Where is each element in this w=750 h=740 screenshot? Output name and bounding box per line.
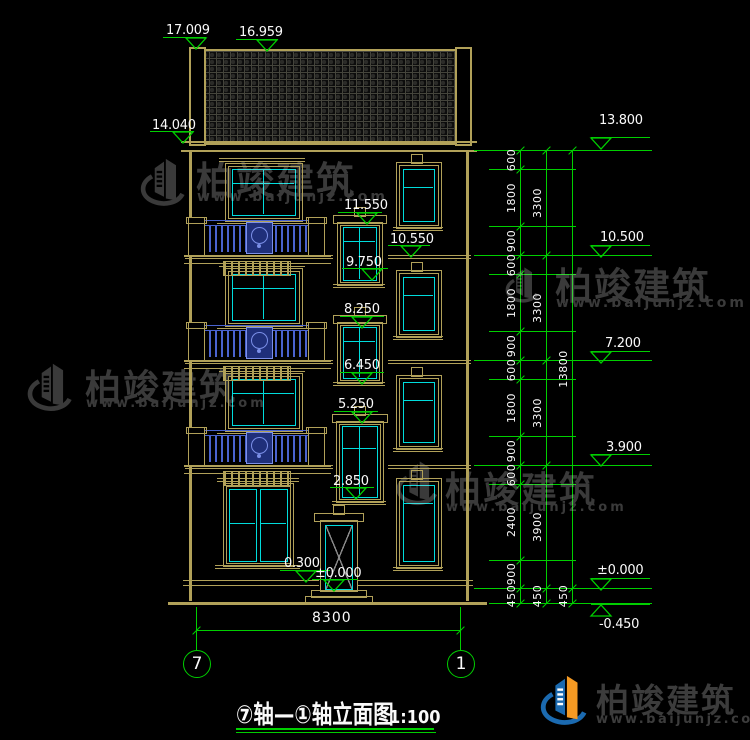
watermark-url: www.baijunjz.com — [197, 189, 388, 205]
drawing-scale: 1:100 — [389, 707, 441, 728]
watermark-layer: 柏竣建筑www.baijunjz.com柏竣建筑www.baijunjz.com… — [0, 0, 750, 740]
drawing-title: ⑦轴—①轴立面图 — [236, 695, 394, 731]
title-underline — [236, 728, 434, 730]
watermark-url: www.baijunjz.com — [86, 396, 267, 411]
baijun-logo-icon — [540, 672, 590, 726]
baijun-logo-icon — [140, 150, 188, 212]
baijun-logo-icon — [505, 255, 541, 313]
baijun-logo-icon — [24, 360, 78, 412]
bottom-dimension-label: 8300 — [312, 610, 352, 626]
watermark-url: www.baijunjz.com — [446, 500, 627, 515]
title-underline-2 — [236, 732, 436, 733]
baijun-logo-icon — [395, 458, 441, 506]
watermark-url: www.baijunjz.com — [556, 295, 747, 311]
cad-elevation-canvas: 6001800900600180090060018009006002400900… — [0, 0, 750, 740]
footer-url: www.baijunjz.com — [596, 712, 750, 727]
